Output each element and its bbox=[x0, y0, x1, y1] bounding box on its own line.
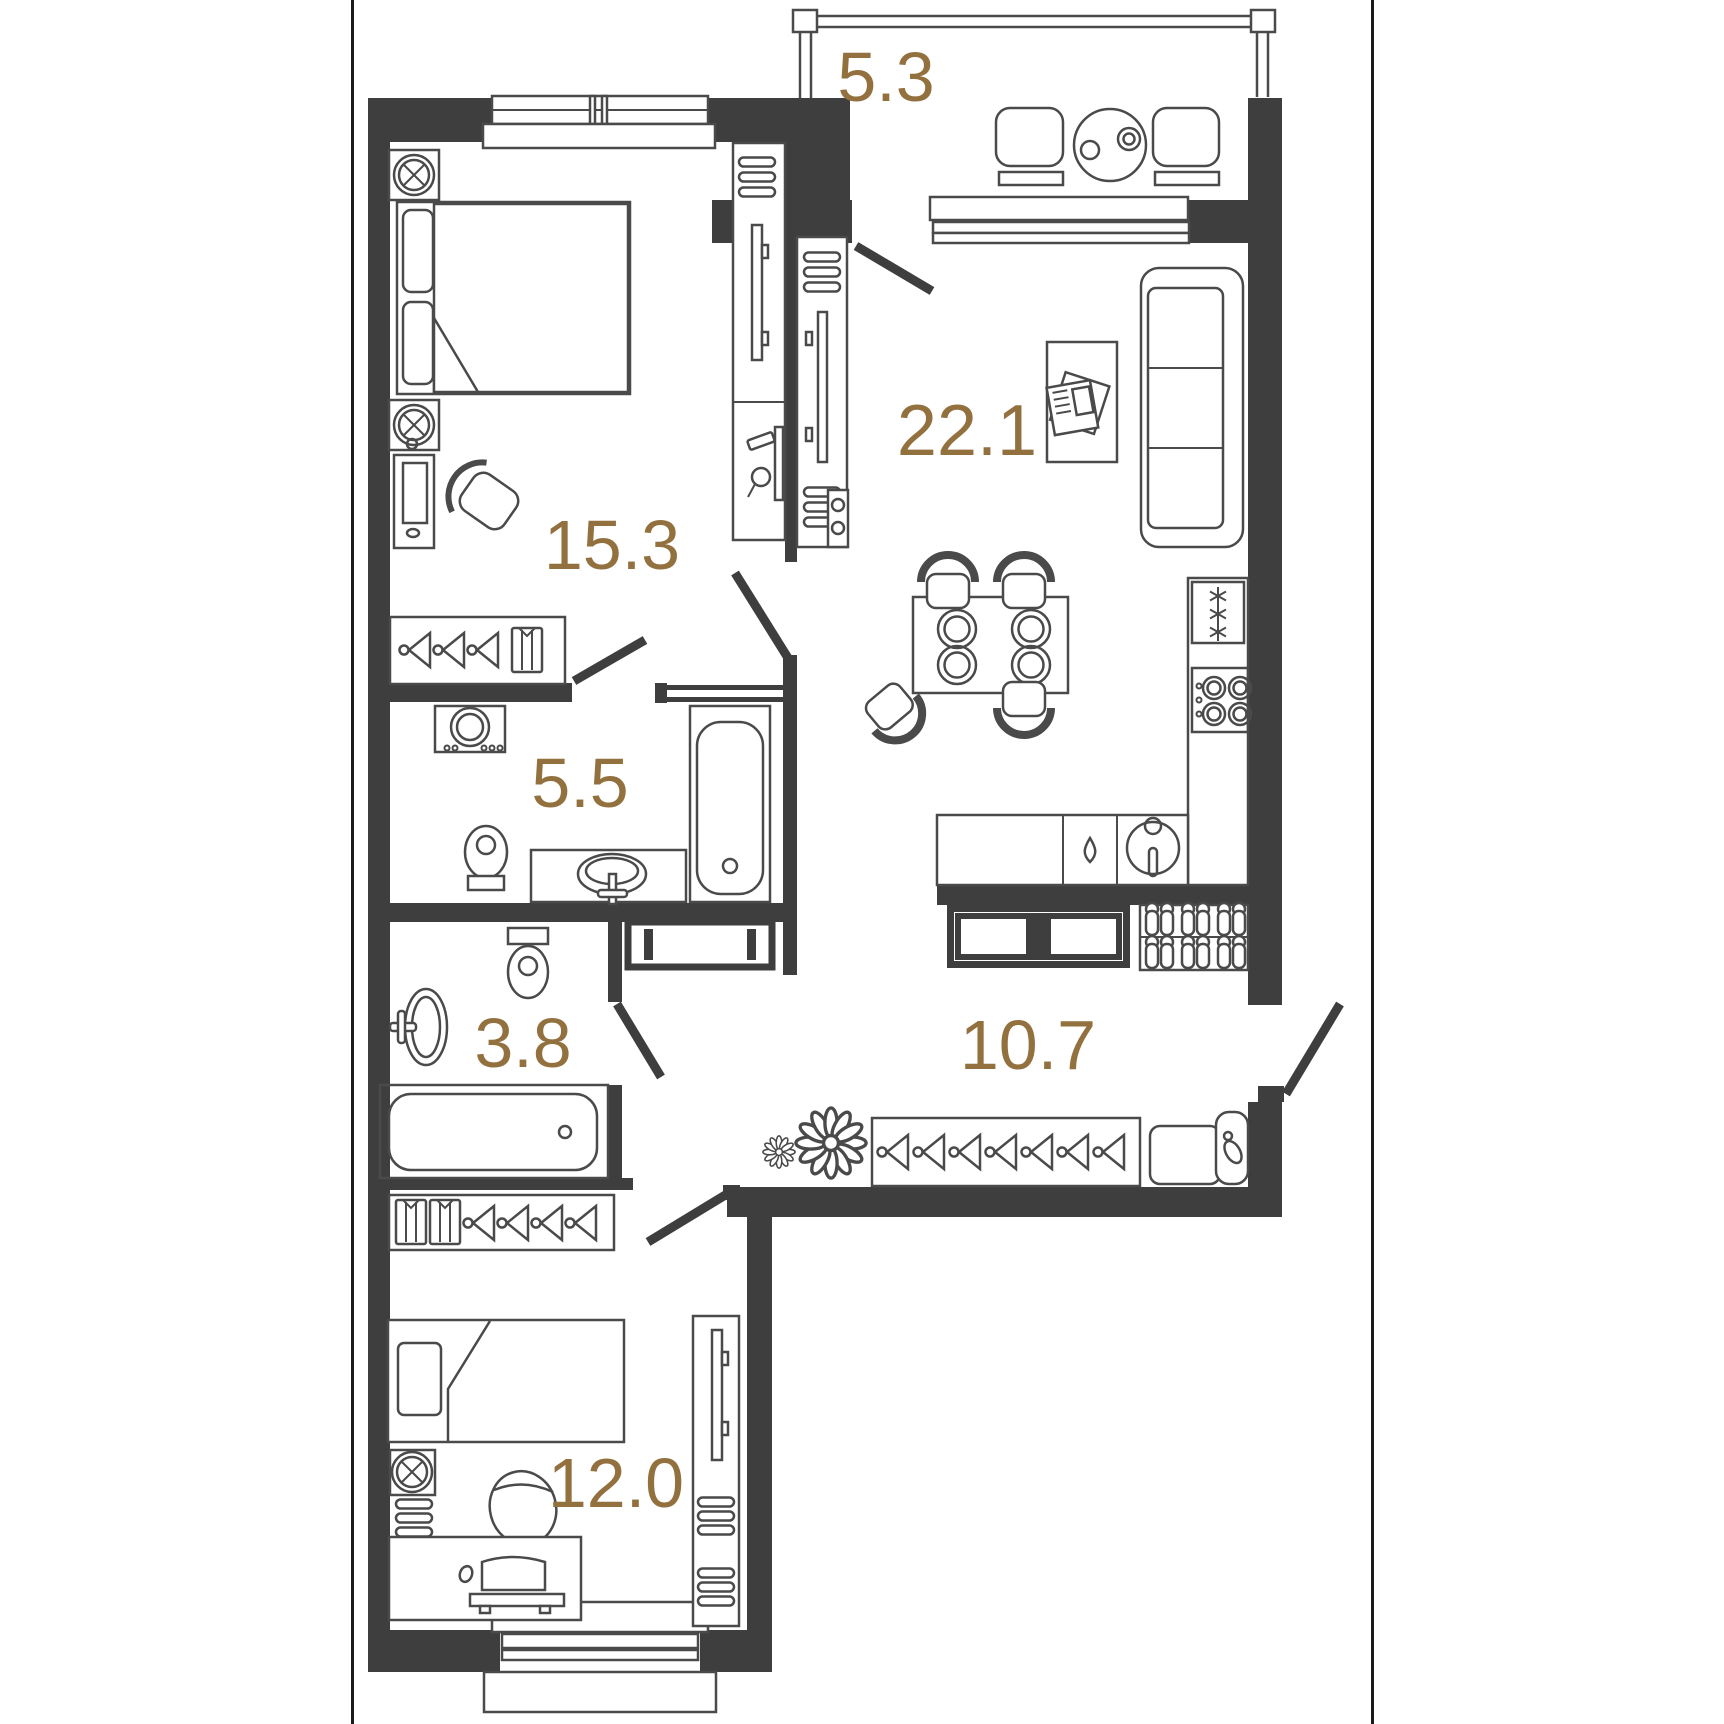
balcony-chair-icon bbox=[996, 108, 1063, 166]
bathroom-door-icon bbox=[574, 640, 645, 681]
bathtub-icon bbox=[380, 1085, 608, 1178]
folded-shirt-icon bbox=[512, 628, 542, 672]
tv-cabinet-icon bbox=[693, 1316, 739, 1626]
room-label-living-kitchen: 22.1 bbox=[897, 391, 1037, 471]
room-label-bedroom-2: 12.0 bbox=[548, 1444, 684, 1522]
floor-plan-page: 5.3 22.1 15.3 5.5 3.8 10.7 12.0 bbox=[0, 0, 1724, 1724]
bedroom-window-icon bbox=[483, 96, 715, 148]
entrance-door-icon bbox=[1286, 1004, 1340, 1094]
desk-chair-icon bbox=[437, 452, 527, 540]
tv-panel-icon bbox=[752, 225, 762, 360]
living-kitchen-furniture bbox=[797, 237, 1251, 885]
single-bed-icon bbox=[388, 1320, 624, 1442]
balcony-chair-icon bbox=[1153, 108, 1219, 166]
desk-icon bbox=[394, 439, 434, 548]
laptop-icon bbox=[482, 1557, 545, 1590]
entry-shoe-box-icon bbox=[1216, 1112, 1248, 1184]
pillow-icon bbox=[398, 1343, 441, 1415]
room-label-bedroom: 15.3 bbox=[544, 506, 680, 584]
bathroom2-door-icon bbox=[617, 1004, 661, 1077]
bedroom-door-icon bbox=[735, 573, 788, 658]
bathroom-sink-icon bbox=[390, 989, 447, 1065]
radiator-icon bbox=[396, 1500, 432, 1537]
wardrobe-icon bbox=[390, 617, 565, 684]
toilet-icon bbox=[465, 826, 507, 890]
plant-icon bbox=[763, 1136, 795, 1168]
tv-panel-icon bbox=[712, 1330, 722, 1460]
bathtub-icon bbox=[690, 706, 770, 902]
toilet-icon bbox=[508, 928, 548, 998]
wall-lamp-icon bbox=[390, 1450, 435, 1495]
room-label-bathroom-2: 3.8 bbox=[474, 1004, 571, 1082]
balcony-table-icon bbox=[1074, 109, 1146, 181]
living-window-icon bbox=[930, 197, 1189, 243]
shelf-icon bbox=[828, 490, 848, 547]
tv-panel-icon bbox=[818, 312, 827, 462]
bathroom-sink-icon bbox=[531, 850, 686, 904]
sofa-icon bbox=[1141, 268, 1243, 547]
bedroom2-door-icon bbox=[648, 1194, 727, 1242]
washing-machine-icon bbox=[435, 706, 505, 752]
plant-icon bbox=[796, 1108, 866, 1178]
towel-radiator-icon bbox=[628, 922, 772, 967]
room-label-balcony: 5.3 bbox=[837, 38, 934, 116]
sliding-wardrobe-icon bbox=[947, 905, 1130, 968]
balcony-furniture bbox=[996, 108, 1219, 185]
wall-lamp-icon bbox=[389, 150, 439, 200]
pouf-icon bbox=[1150, 1126, 1220, 1184]
folded-shirt-icon bbox=[430, 1200, 460, 1244]
pillow-icon bbox=[403, 210, 433, 292]
tv-cabinet-icon bbox=[733, 143, 785, 540]
coffee-table-icon bbox=[1047, 342, 1117, 462]
shoe-rack-icon bbox=[1140, 903, 1248, 970]
room-label-hallway: 10.7 bbox=[960, 1006, 1096, 1084]
wardrobe-icon bbox=[389, 1195, 614, 1250]
dining-chair-icon bbox=[997, 682, 1051, 735]
desk-icon bbox=[389, 1537, 581, 1620]
wall-lamp-icon bbox=[389, 400, 439, 450]
pillow-icon bbox=[403, 302, 433, 384]
page-border-left bbox=[351, 0, 354, 1724]
page-border-right bbox=[1371, 0, 1374, 1724]
folded-shirt-icon bbox=[396, 1200, 426, 1244]
dining-table-icon bbox=[913, 597, 1068, 693]
balcony-door-icon bbox=[856, 246, 932, 291]
bedroom2-furniture bbox=[388, 1195, 739, 1626]
dining-chair-icon bbox=[921, 555, 975, 608]
hallway-furniture bbox=[628, 903, 1248, 1186]
dining-chair-icon bbox=[997, 555, 1051, 608]
double-bed-icon bbox=[397, 202, 630, 394]
coat-rack-icon bbox=[872, 1118, 1140, 1186]
floor-plan-drawing: 5.3 22.1 15.3 5.5 3.8 10.7 12.0 bbox=[0, 0, 1724, 1724]
room-label-bathroom: 5.5 bbox=[531, 744, 628, 822]
